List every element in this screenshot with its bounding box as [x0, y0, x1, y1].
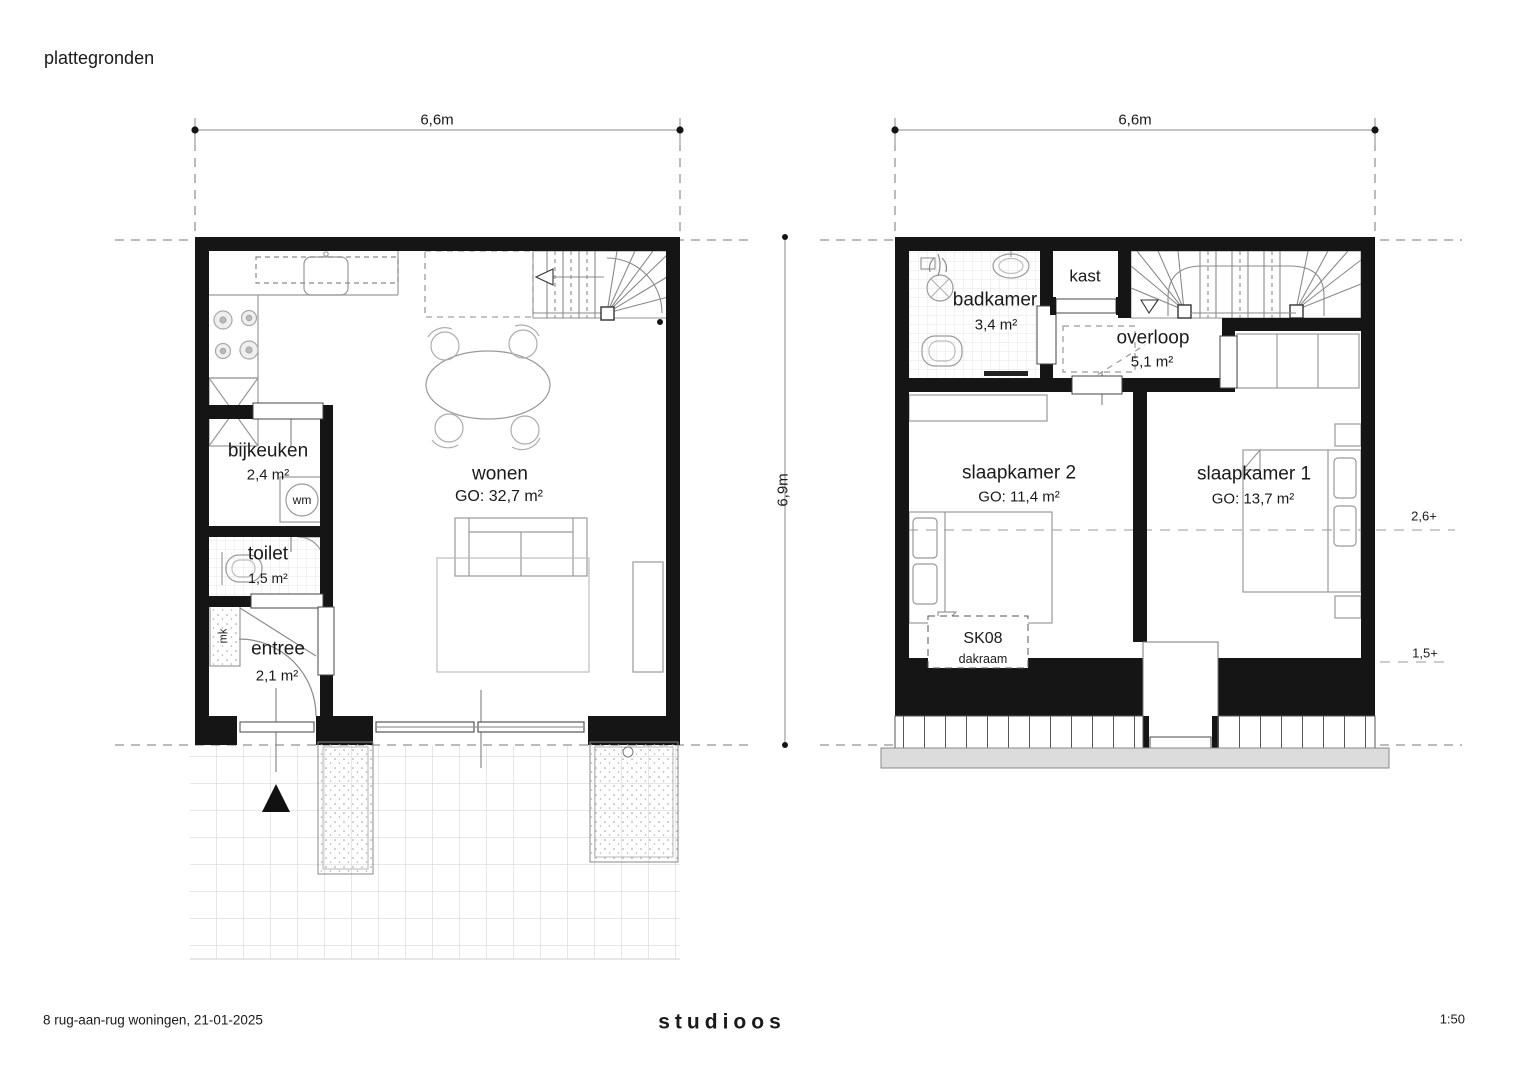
room-area-overloop: 5,1 m² — [1131, 355, 1174, 370]
rug — [437, 558, 589, 672]
slaapkamer1-door — [1220, 336, 1237, 388]
room-label-slaapkamer2: slaapkamer 2 — [962, 464, 1076, 483]
upper-cabinets — [256, 257, 398, 283]
stairs-upper — [1131, 251, 1361, 318]
roof-edge — [881, 716, 1389, 768]
room-label-entree: entree — [251, 640, 305, 659]
ground-floor-windows — [376, 722, 584, 732]
floorplan-drawing — [0, 0, 1528, 1080]
nightstand-1 — [1335, 424, 1361, 446]
stairs-ground — [425, 251, 672, 325]
kast-door — [1056, 299, 1116, 313]
meter-cupboard-label: mk — [219, 629, 230, 644]
room-area-entree: 2,1 m² — [256, 669, 299, 684]
dim-ground-width: 6,6m — [420, 113, 453, 128]
gutter-band — [881, 748, 1389, 768]
skylight-code: SK08 — [963, 631, 1002, 647]
room-label-bijkeuken: bijkeuken — [228, 442, 308, 461]
room-label-overloop: overloop — [1117, 329, 1190, 348]
room-label-slaapkamer1: slaapkamer 1 — [1197, 465, 1311, 484]
washing-machine-label: wm — [293, 494, 312, 506]
room-label-badkamer: badkamer — [953, 291, 1038, 310]
room-label-kast: kast — [1069, 268, 1100, 285]
stair-direction-arrow-upper — [1141, 300, 1158, 313]
stove-icon — [214, 311, 258, 360]
project-title: 8 rug-aan-rug woningen, 21-01-2025 — [43, 1013, 263, 1027]
room-area-toilet: 1,5 m² — [248, 571, 288, 585]
reference-lines — [115, 142, 1462, 745]
floorplan-sheet: plattegronden 6,6m 6,6m 6,9m bijkeuken 2… — [0, 0, 1528, 1080]
dormer-bay — [1143, 642, 1218, 754]
sheet-title: plattegronden — [44, 49, 154, 67]
stair-direction-arrow — [536, 269, 553, 285]
wardrobe-sk1 — [1237, 334, 1359, 388]
sofa — [455, 518, 587, 576]
dim-upper-width: 6,6m — [1118, 113, 1151, 128]
room-area-slaapkamer1: GO: 13,7 m² — [1212, 492, 1295, 507]
studio-logo: studioos — [658, 1012, 786, 1033]
room-area-bijkeuken: 2,4 m² — [247, 468, 290, 483]
kitchen-sink — [304, 257, 348, 295]
void-dashed-outline — [425, 251, 533, 317]
shower-mat — [984, 371, 1028, 376]
upper-floor-plan — [881, 237, 1455, 768]
room-area-slaapkamer2: GO: 11,4 m² — [978, 490, 1059, 505]
slaapkamer2-door — [1072, 376, 1122, 394]
dining-table — [426, 325, 550, 450]
skylight-type: dakraam — [959, 653, 1008, 666]
ground-floor-fixtures — [209, 251, 663, 772]
nightstand-2 — [1335, 596, 1361, 618]
room-label-toilet: toilet — [248, 545, 288, 564]
level-marker-26: 2,6+ — [1411, 510, 1437, 523]
dim-depth: 6,9m — [776, 473, 791, 506]
front-door — [240, 722, 314, 732]
living-cabinet — [633, 562, 663, 672]
drawing-scale: 1:50 — [1440, 1013, 1465, 1026]
wardrobe-sk2 — [909, 395, 1047, 421]
level-marker-15: 1,5+ — [1412, 647, 1438, 660]
room-area-badkamer: 3,4 m² — [975, 318, 1018, 333]
room-area-wonen: GO: 32,7 m² — [455, 489, 543, 505]
room-label-wonen: wonen — [472, 465, 528, 484]
